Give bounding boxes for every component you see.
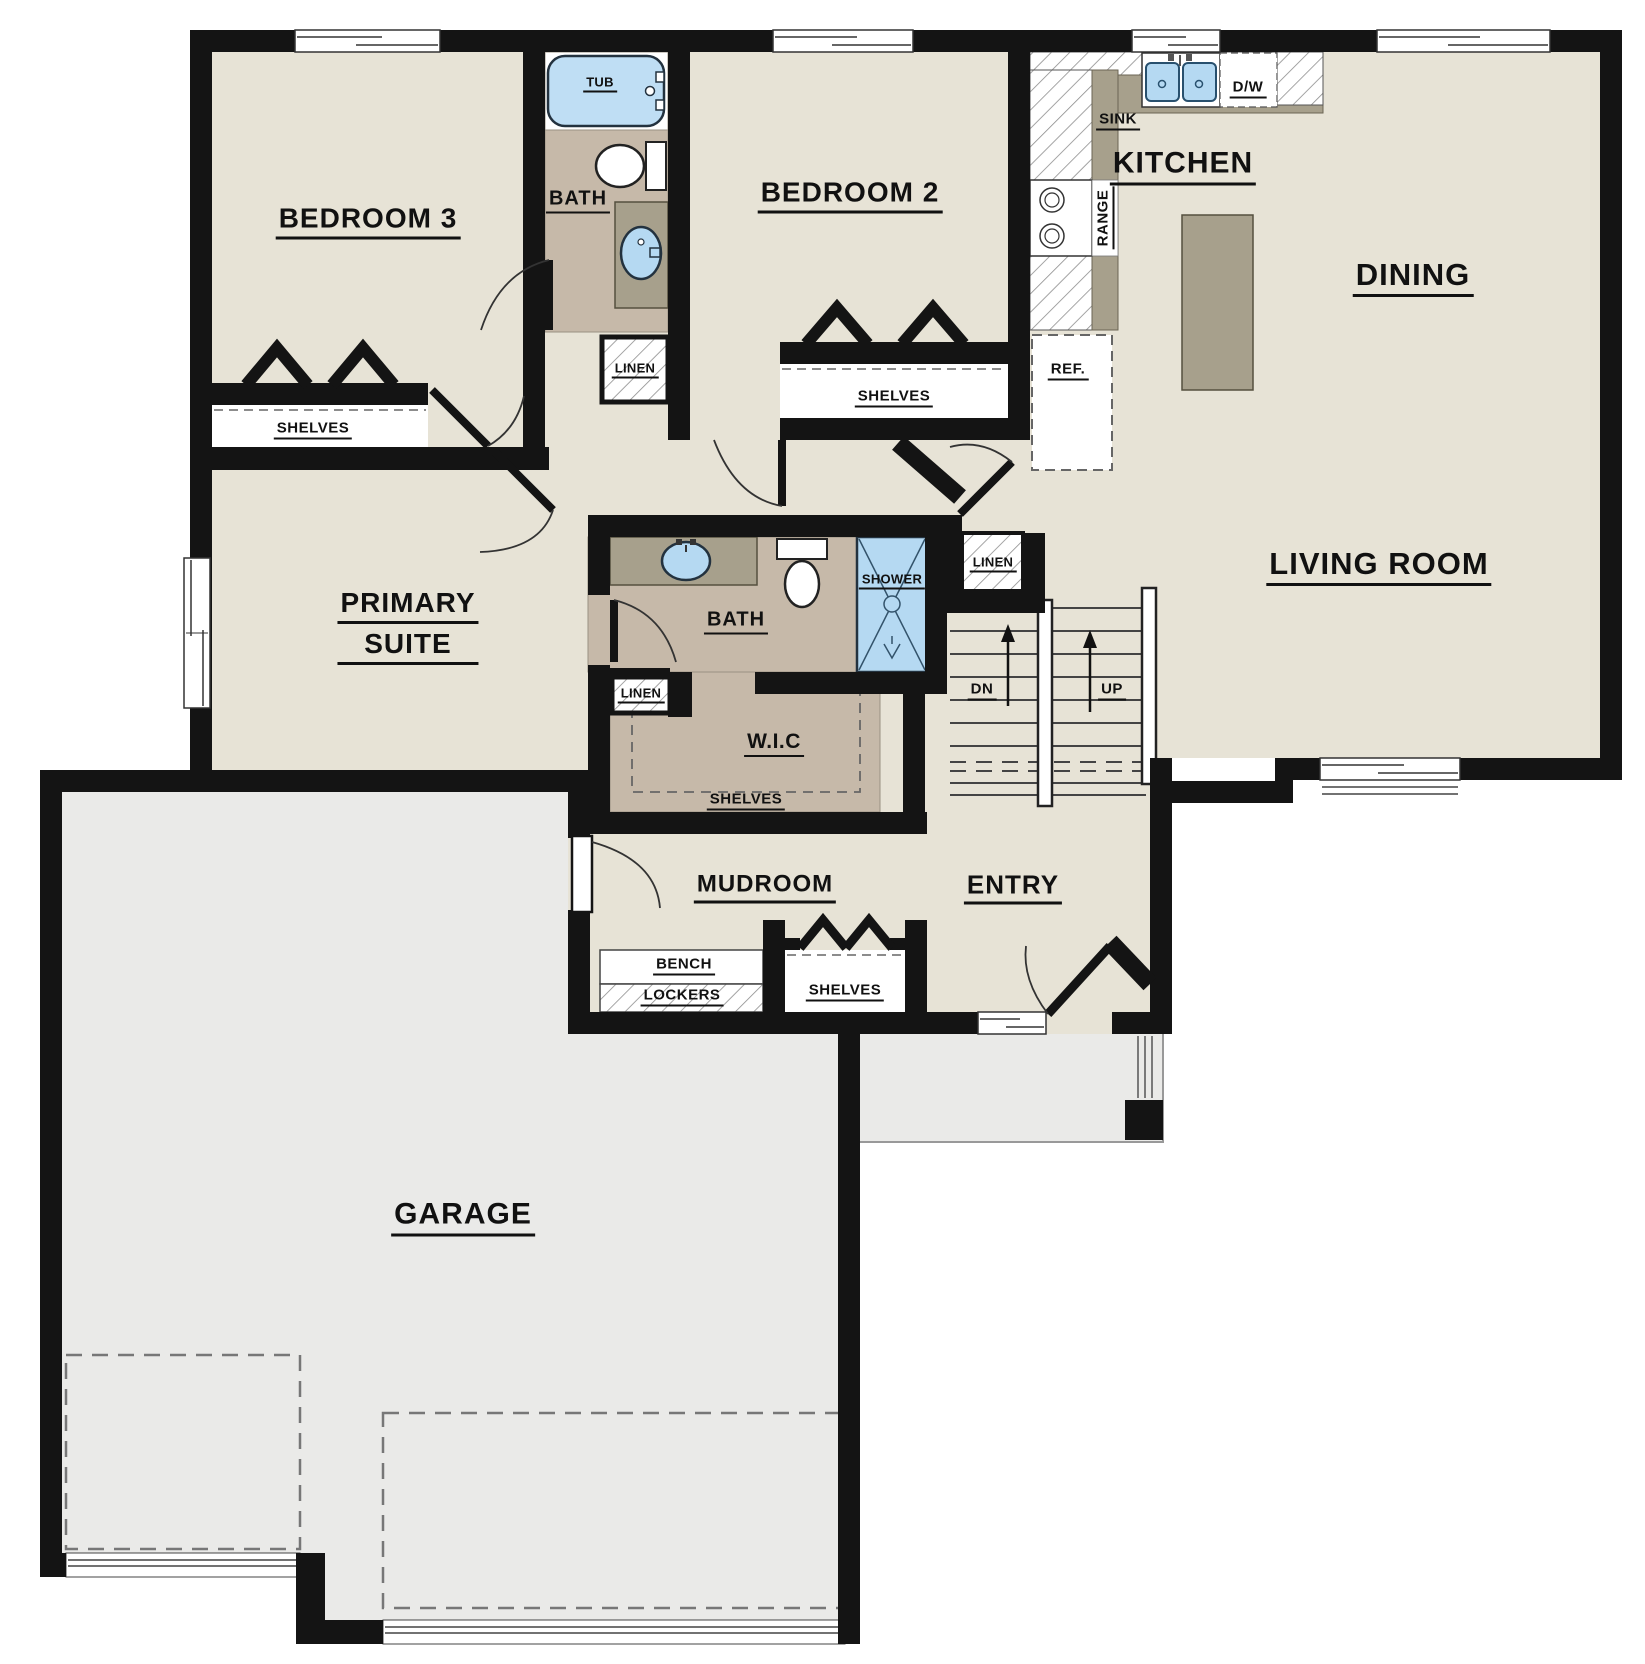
porch-post [1125, 1100, 1163, 1140]
room-label-hall-bath: BATH [546, 189, 610, 214]
room-label-kitchen: KITCHEN [1110, 149, 1256, 186]
shower [857, 537, 927, 672]
label-hall-linen: LINEN [612, 362, 659, 379]
garage-door-2 [383, 1620, 845, 1644]
label-bench: BENCH [653, 957, 715, 976]
window-bedroom2 [773, 30, 913, 52]
vanity-sink [615, 202, 668, 308]
label-stairs-linen: LINEN [970, 556, 1017, 573]
window-dining [1377, 30, 1550, 52]
window-kitchen-sink [1132, 30, 1220, 52]
toilet [596, 142, 666, 190]
label-shower: SHOWER [859, 573, 925, 590]
room-label-living: LIVING ROOM [1266, 548, 1491, 586]
window-primary-suite [184, 558, 210, 708]
window-entry-sidelite [978, 1012, 1046, 1034]
label-tub: TUB [583, 76, 617, 93]
stair-rail-right [1142, 588, 1156, 784]
room-label-garage: GARAGE [391, 1200, 535, 1237]
kitchen-island [1182, 215, 1253, 390]
stair-rail-center [1038, 600, 1052, 806]
room-label-mudroom: MUDROOM [694, 873, 836, 904]
label-mudroom-shelves: SHELVES [806, 983, 884, 1002]
floor-plan-canvas: BEDROOM 3 SHELVES BATH TUB LINEN BEDROOM… [0, 0, 1645, 1664]
label-range: RANGE [1096, 187, 1115, 250]
label-dishwasher: D/W [1230, 80, 1267, 99]
label-fridge: REF. [1048, 362, 1089, 381]
garage-door-1 [66, 1553, 300, 1577]
room-label-wic: W.I.C [744, 731, 804, 757]
kitchen-sink [1142, 53, 1220, 107]
label-primary-linen: LINEN [618, 687, 665, 704]
window-bedroom3 [295, 30, 440, 52]
label-wic-shelves: SHELVES [707, 792, 785, 811]
floor-plan-drawing [0, 0, 1645, 1664]
vanity-sink [610, 537, 757, 585]
room-label-bedroom3: BEDROOM 3 [276, 205, 461, 240]
room-label-primary-suite: PRIMARY SUITE [337, 589, 478, 671]
label-lockers: LOCKERS [641, 988, 724, 1007]
window-living-room [1320, 758, 1460, 794]
room-label-bedroom2: BEDROOM 2 [758, 179, 943, 214]
label-sink: SINK [1096, 112, 1140, 131]
label-bedroom3-shelves: SHELVES [274, 421, 352, 440]
room-label-dining: DINING [1353, 259, 1474, 297]
room-label-primary-bath: BATH [704, 610, 768, 635]
label-stairs-up: UP [1098, 682, 1126, 701]
label-bedroom2-shelves: SHELVES [855, 389, 933, 408]
room-label-entry: ENTRY [964, 872, 1062, 905]
label-stairs-down: DN [968, 682, 997, 701]
refrigerator [1032, 335, 1112, 470]
